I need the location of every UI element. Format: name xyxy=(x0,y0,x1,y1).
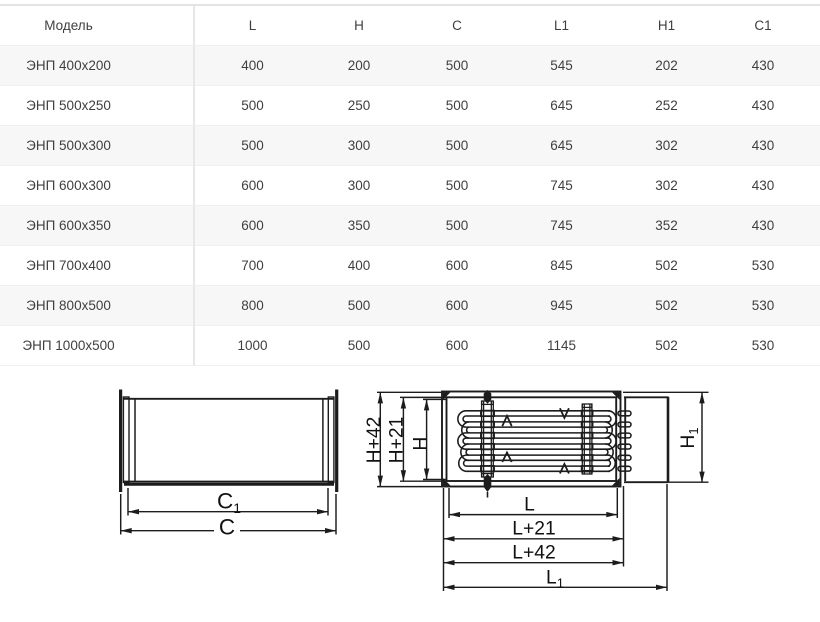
svg-text:C: C xyxy=(219,515,235,540)
svg-text:L: L xyxy=(524,495,535,516)
svg-text:H+42: H+42 xyxy=(364,417,385,464)
svg-text:L+42: L+42 xyxy=(512,543,555,564)
svg-text:H1: H1 xyxy=(678,427,701,448)
svg-text:H+21: H+21 xyxy=(387,417,408,464)
svg-text:L+21: L+21 xyxy=(512,519,555,540)
svg-text:C1: C1 xyxy=(217,489,241,517)
svg-text:H: H xyxy=(410,437,431,451)
svg-text:L1: L1 xyxy=(546,568,564,591)
